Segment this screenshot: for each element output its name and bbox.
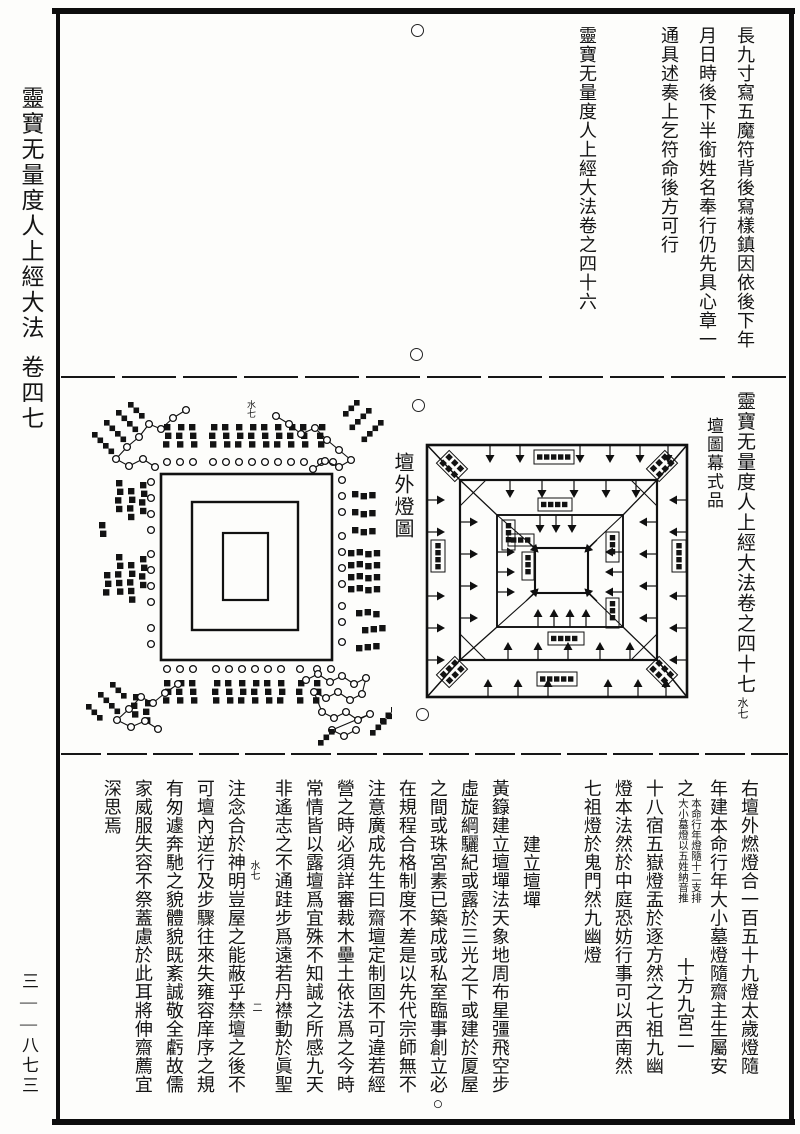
lamp-diagram-title: 壇外燈圖 — [388, 452, 417, 540]
text-column: 營之時必須詳審裁木壘土依法爲之今時 — [329, 779, 360, 1115]
section-title: 壇圖幕式品 — [701, 417, 726, 510]
spine-title: 靈寶无量度人上經大法卷四七 — [13, 86, 47, 432]
page-number: 三——八七三 — [16, 972, 41, 1096]
text-column: 家威服失容不祭蓋慮於此耳將伸齋薦宜 — [127, 779, 158, 1115]
text-column: 月日時後下半銜姓名奉行仍先具心章一 — [688, 26, 726, 370]
binding-hole — [410, 348, 423, 361]
text-column: 黃籙建立壇墠法天象地周布星彊飛空步 — [484, 779, 515, 1115]
frame-border-right — [789, 8, 794, 1125]
fold-mark: 二 — [248, 1002, 263, 1012]
top-register-text: 長九寸寫五魔符背後寫樣鎮因依後下年月日時後下半銜姓名奉行仍先具心章一通具述奏上乞… — [568, 26, 764, 370]
text-column: 注意廣成先生曰齋壇定制固不可違若經 — [360, 779, 391, 1115]
text-column: 非遙志之不通跬步爲遠若丹襟動於眞聖 — [267, 779, 298, 1115]
text-column: 十八宿五嶽燈盂於逐方然之七祖九幽 — [638, 779, 669, 1115]
frame-border-left — [56, 8, 60, 1125]
interlinear-note: 本命行年燈隨十二支排大小墓燈以五姓納音推 — [676, 798, 702, 958]
text-column: 之間或珠宮素已築成或私室臨事創立必○ — [422, 779, 453, 1115]
text-column: 通具述奏上乞符命後方可行 — [650, 26, 688, 370]
text-column: 有匆遽奔馳之貌體貌既紊誠敬全虧故儒 — [158, 779, 189, 1115]
text-column: 常情皆以露壇爲宜殊不知誠之所感九天 — [298, 779, 329, 1115]
fold-mark: 水七 — [734, 697, 750, 719]
frame-border-bottom — [52, 1119, 795, 1125]
bottom-register-text: 右壇外燃燈合一百五十九燈太歲燈隨年建本命行年大小墓燈隨齋主生屬安之本命行年燈隨十… — [96, 779, 764, 1115]
altar-outer-lamp-diagram — [70, 396, 392, 752]
text-column: 在規程合格制度不差是以先代宗師無不 — [391, 779, 422, 1115]
spine-volume-label: 卷四七 — [18, 341, 43, 432]
text-column: 靈寶无量度人上經大法卷之四十六 — [568, 26, 606, 370]
register-divider-upper — [61, 376, 788, 378]
altar-plan-diagram — [422, 440, 702, 724]
binding-hole — [411, 24, 424, 37]
register-divider-lower — [61, 753, 788, 755]
text-column: 虛旋綱驪紀或露於三光之下或建於厦屋 — [453, 779, 484, 1115]
text-column: 年建本命行年大小墓燈隨齋主生屬安 — [702, 779, 733, 1115]
spine-title-text: 靈寶无量度人上經大法 — [18, 86, 43, 341]
binding-hole — [412, 399, 425, 412]
text-column: 七祖燈於鬼門然九幽燈 — [576, 779, 607, 1115]
text-column: 深思焉 — [96, 779, 127, 1115]
text-column: 長九寸寫五魔符背後寫樣鎮因依後下年 — [726, 26, 764, 370]
text-column-with-note: 之本命行年燈隨十二支排大小墓燈以五姓納音推十方九宮二 — [669, 779, 702, 1115]
frame-border-top — [52, 8, 795, 14]
fold-mark: 水七 — [246, 860, 261, 880]
text-column: 注念合於神明豈屋之能蔽乎禁壇之後不 — [220, 779, 251, 1115]
text-column: 燈本法然於中庭恐妨行事可以西南然 — [607, 779, 638, 1115]
scanned-canon-page: 靈寶无量度人上經大法卷四七 三——八七三 長九寸寫五魔符背後寫樣鎮因依後下年月日… — [0, 0, 800, 1134]
volume-title: 靈寶无量度人上經大法卷之四十七 — [731, 391, 758, 694]
text-column: 右壇外燃燈合一百五十九燈太歲燈隨 — [733, 779, 764, 1115]
text-column: 可壇內逆行及步驟往來失雍容庠序之規 — [189, 779, 220, 1115]
text-column: 建立壇墠 — [515, 779, 546, 1115]
